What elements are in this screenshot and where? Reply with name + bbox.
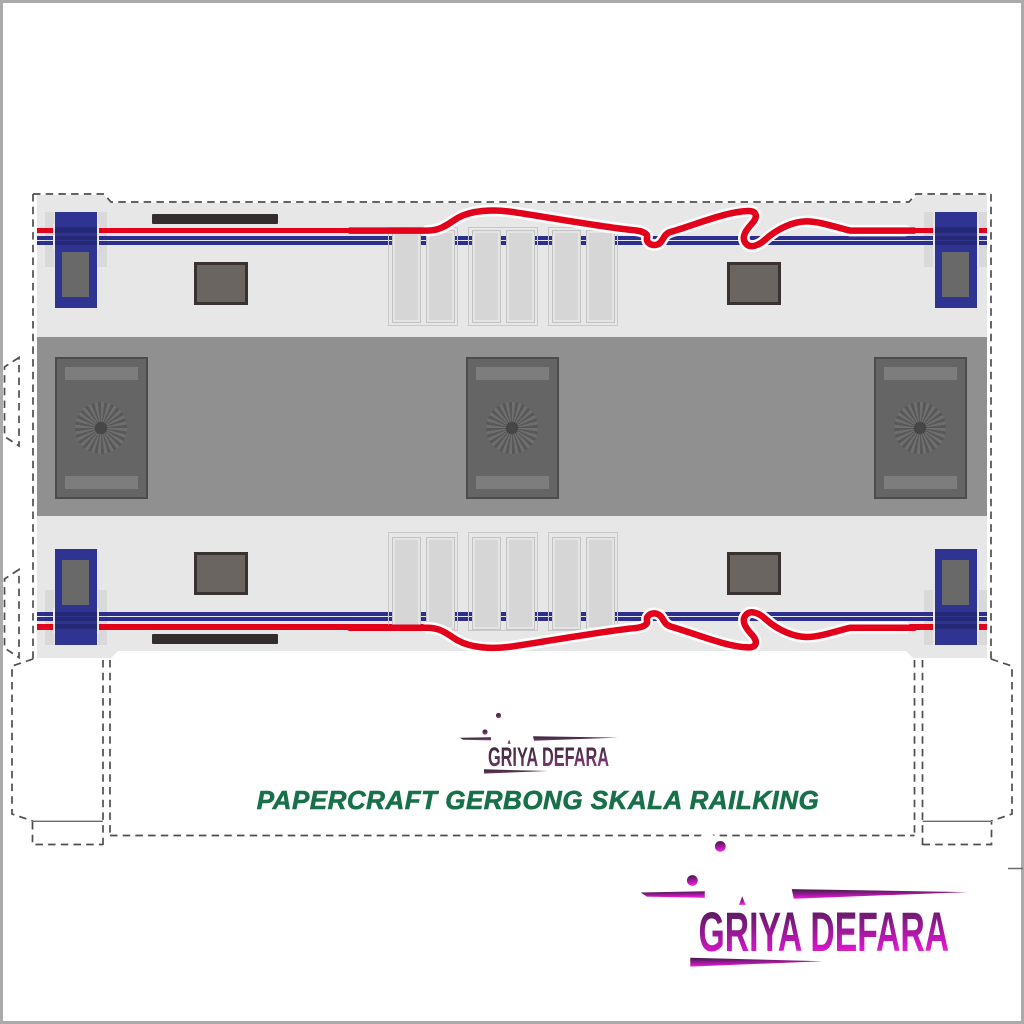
ac-vent-bar [884, 367, 957, 380]
carriage-window [194, 552, 248, 595]
papercraft-template-sheet: PAPERCRAFT GERBONG SKALA RAILKING [0, 0, 1024, 1024]
sheet-title: PAPERCRAFT GERBONG SKALA RAILKING [248, 785, 828, 816]
brand-logo-small-text: GRIYA DEFARA [488, 742, 609, 772]
roof-ac-unit [55, 357, 148, 499]
vent-slat-group [548, 532, 618, 631]
carriage-window [194, 262, 248, 305]
roof-ac-unit [466, 357, 559, 499]
fold-line [33, 821, 1024, 868]
destination-sign-bar [152, 214, 278, 224]
brand-logo-large: GRIYA DEFARA [641, 793, 968, 967]
vent-slat-group [468, 532, 538, 631]
destination-sign-bar [152, 634, 278, 644]
ac-vent-bar [884, 476, 957, 489]
vent-slat-group [548, 227, 618, 326]
vent-slat-group [388, 532, 458, 631]
brand-logo-small: GRIYA DEFARA [460, 690, 618, 774]
fan-icon [75, 402, 127, 454]
fan-icon [486, 402, 538, 454]
roof-ac-unit [874, 357, 967, 499]
ac-vent-bar [65, 476, 138, 489]
door-window [942, 560, 969, 605]
ac-vent-bar [476, 367, 549, 380]
fan-icon [894, 402, 946, 454]
door-window [62, 252, 89, 297]
door-window [942, 252, 969, 297]
carriage-window [727, 552, 781, 595]
vent-slat-group [468, 227, 538, 326]
door-window [62, 560, 89, 605]
vent-slat-group [388, 227, 458, 326]
carriage-window [727, 262, 781, 305]
ac-vent-bar [65, 367, 138, 380]
ac-vent-bar [476, 476, 549, 489]
brand-logo-large-text: GRIYA DEFARA [699, 900, 949, 963]
